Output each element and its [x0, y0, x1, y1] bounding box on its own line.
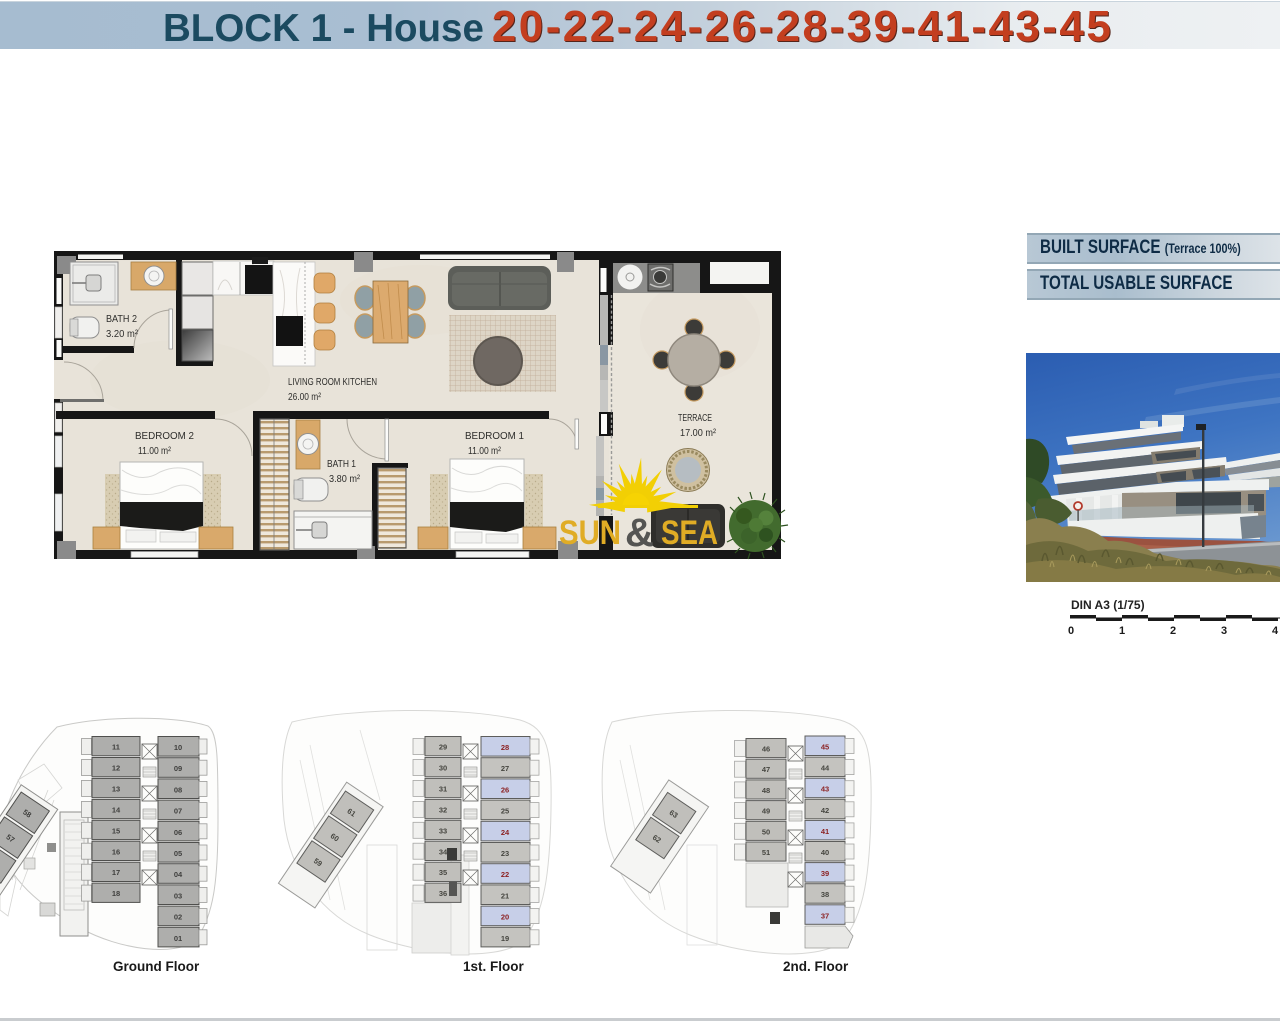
svg-text:44: 44 — [821, 764, 830, 773]
svg-text:31: 31 — [439, 784, 447, 793]
svg-text:3.80 m²: 3.80 m² — [329, 473, 360, 485]
svg-text:04: 04 — [174, 870, 183, 879]
svg-text:22: 22 — [501, 870, 509, 879]
svg-text:39: 39 — [821, 869, 829, 878]
svg-text:4: 4 — [1272, 625, 1279, 637]
svg-text:&: & — [625, 511, 654, 555]
svg-text:41: 41 — [821, 827, 829, 836]
svg-text:18: 18 — [112, 889, 120, 898]
svg-text:3: 3 — [1221, 625, 1227, 637]
svg-text:BEDROOM 2: BEDROOM 2 — [135, 430, 194, 442]
svg-text:50: 50 — [762, 827, 770, 836]
svg-text:06: 06 — [174, 828, 182, 837]
svg-text:48: 48 — [762, 786, 770, 795]
svg-text:28: 28 — [501, 743, 509, 752]
svg-text:SUN: SUN — [559, 514, 621, 552]
svg-text:11.00 m²: 11.00 m² — [468, 445, 501, 457]
svg-text:09: 09 — [174, 764, 182, 773]
svg-text:05: 05 — [174, 849, 182, 858]
svg-text:26: 26 — [501, 785, 509, 794]
svg-text:46: 46 — [762, 745, 770, 754]
svg-text:08: 08 — [174, 785, 182, 794]
svg-text:33: 33 — [439, 826, 447, 835]
svg-text:13: 13 — [112, 784, 120, 793]
svg-text:51: 51 — [762, 848, 770, 857]
svg-text:BATH 1: BATH 1 — [327, 458, 356, 470]
svg-text:LIVING ROOM KITCHEN: LIVING ROOM KITCHEN — [288, 376, 377, 388]
svg-text:0: 0 — [1068, 625, 1074, 637]
svg-text:35: 35 — [439, 868, 447, 877]
svg-text:37: 37 — [821, 911, 829, 920]
svg-text:16: 16 — [112, 847, 120, 856]
svg-text:11: 11 — [112, 743, 120, 752]
svg-text:43: 43 — [821, 785, 829, 794]
svg-text:3.20 m²: 3.20 m² — [106, 328, 138, 340]
svg-text:24: 24 — [501, 828, 510, 837]
svg-text:27: 27 — [501, 764, 509, 773]
svg-text:32: 32 — [439, 805, 447, 814]
svg-text:21: 21 — [501, 891, 509, 900]
svg-text:49: 49 — [762, 807, 770, 816]
svg-text:12: 12 — [112, 763, 120, 772]
svg-text:38: 38 — [821, 890, 829, 899]
svg-text:1: 1 — [1119, 625, 1125, 637]
svg-text:36: 36 — [439, 889, 447, 898]
svg-text:TERRACE: TERRACE — [678, 412, 712, 424]
svg-text:25: 25 — [501, 807, 509, 816]
svg-text:26.00 m²: 26.00 m² — [288, 391, 321, 403]
svg-text:40: 40 — [821, 848, 829, 857]
svg-text:17: 17 — [112, 868, 120, 877]
svg-text:BEDROOM 1: BEDROOM 1 — [465, 430, 524, 442]
svg-text:2: 2 — [1170, 625, 1176, 637]
svg-text:02: 02 — [174, 913, 182, 922]
svg-text:14: 14 — [112, 805, 121, 814]
svg-text:42: 42 — [821, 806, 829, 815]
svg-text:17.00 m²: 17.00 m² — [680, 427, 716, 439]
svg-text:47: 47 — [762, 765, 770, 774]
svg-text:20: 20 — [501, 913, 509, 922]
svg-text:45: 45 — [821, 743, 829, 752]
svg-text:07: 07 — [174, 807, 182, 816]
svg-text:SEA: SEA — [661, 514, 718, 552]
svg-text:01: 01 — [174, 934, 182, 943]
svg-text:23: 23 — [501, 849, 509, 858]
svg-text:BATH 2: BATH 2 — [106, 313, 137, 325]
svg-text:19: 19 — [501, 934, 509, 943]
svg-text:34: 34 — [439, 847, 448, 856]
svg-text:29: 29 — [439, 743, 447, 752]
svg-text:10: 10 — [174, 743, 182, 752]
svg-text:03: 03 — [174, 891, 182, 900]
svg-text:30: 30 — [439, 763, 447, 772]
svg-text:15: 15 — [112, 826, 120, 835]
svg-text:11.00 m²: 11.00 m² — [138, 445, 171, 457]
